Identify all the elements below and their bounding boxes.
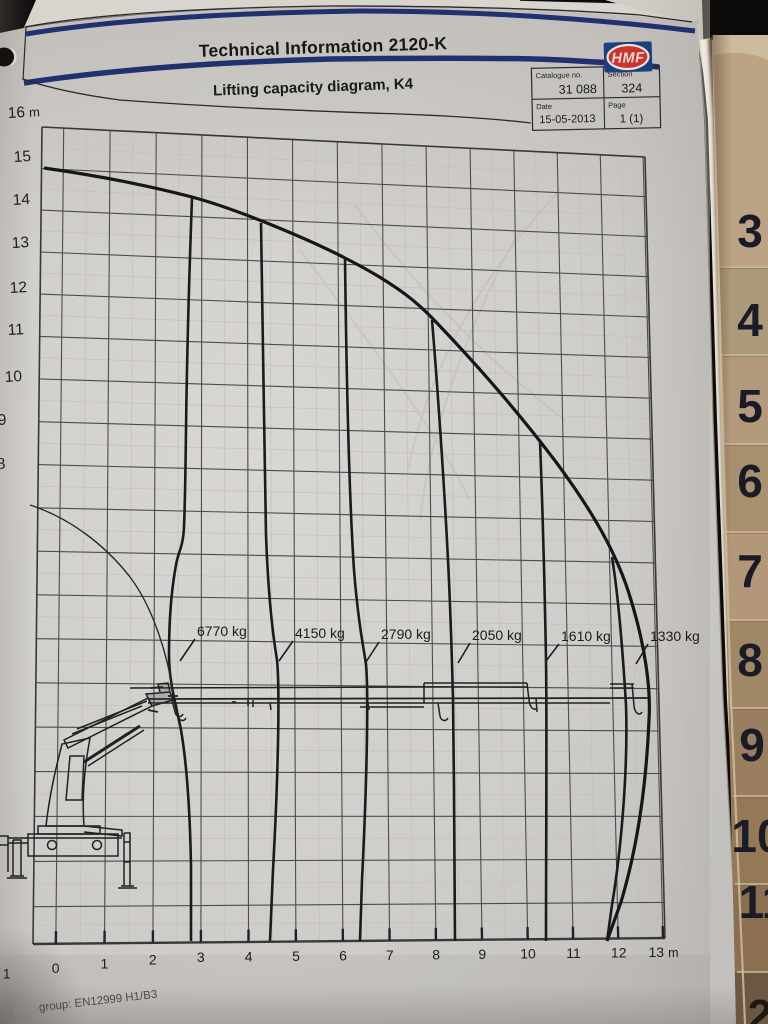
svg-text:12: 12 — [9, 279, 27, 297]
svg-text:15-05-2013: 15-05-2013 — [539, 113, 596, 126]
svg-text:Page: Page — [608, 100, 626, 109]
svg-text:3: 3 — [197, 949, 205, 965]
svg-text:2790 kg: 2790 kg — [381, 626, 431, 642]
svg-text:6: 6 — [339, 948, 347, 964]
svg-text:5: 5 — [292, 948, 300, 964]
svg-text:HMF: HMF — [611, 50, 645, 67]
svg-text:9: 9 — [0, 412, 7, 429]
svg-text:1330 kg: 1330 kg — [650, 628, 700, 644]
svg-text:Catalogue no.: Catalogue no. — [535, 70, 582, 80]
svg-text:4150 kg: 4150 kg — [295, 625, 345, 641]
svg-text:16m: 16m — [7, 103, 40, 122]
svg-text:6770 kg: 6770 kg — [197, 623, 247, 639]
svg-text:Date: Date — [536, 102, 552, 111]
svg-text:1: 1 — [3, 965, 11, 981]
svg-text:31 088: 31 088 — [559, 82, 598, 97]
svg-text:4: 4 — [245, 949, 253, 965]
svg-text:10: 10 — [520, 946, 536, 962]
svg-text:1610 kg: 1610 kg — [561, 628, 611, 644]
svg-text:11: 11 — [566, 945, 581, 961]
svg-text:15: 15 — [13, 148, 31, 166]
svg-text:2050 kg: 2050 kg — [472, 627, 522, 643]
svg-text:8: 8 — [0, 456, 6, 473]
svg-text:13m: 13m — [649, 944, 679, 960]
svg-text:8: 8 — [432, 947, 440, 963]
svg-text:10: 10 — [4, 368, 22, 386]
svg-text:1 (1): 1 (1) — [620, 113, 644, 125]
svg-text:0: 0 — [52, 960, 60, 976]
svg-text:11: 11 — [7, 321, 24, 339]
svg-text:13: 13 — [11, 234, 29, 252]
svg-text:324: 324 — [621, 81, 642, 95]
svg-text:1: 1 — [101, 955, 109, 971]
svg-text:14: 14 — [12, 191, 30, 209]
svg-text:9: 9 — [478, 946, 486, 962]
svg-text:7: 7 — [386, 947, 394, 963]
svg-text:2: 2 — [149, 952, 157, 968]
svg-text:12: 12 — [611, 945, 627, 961]
